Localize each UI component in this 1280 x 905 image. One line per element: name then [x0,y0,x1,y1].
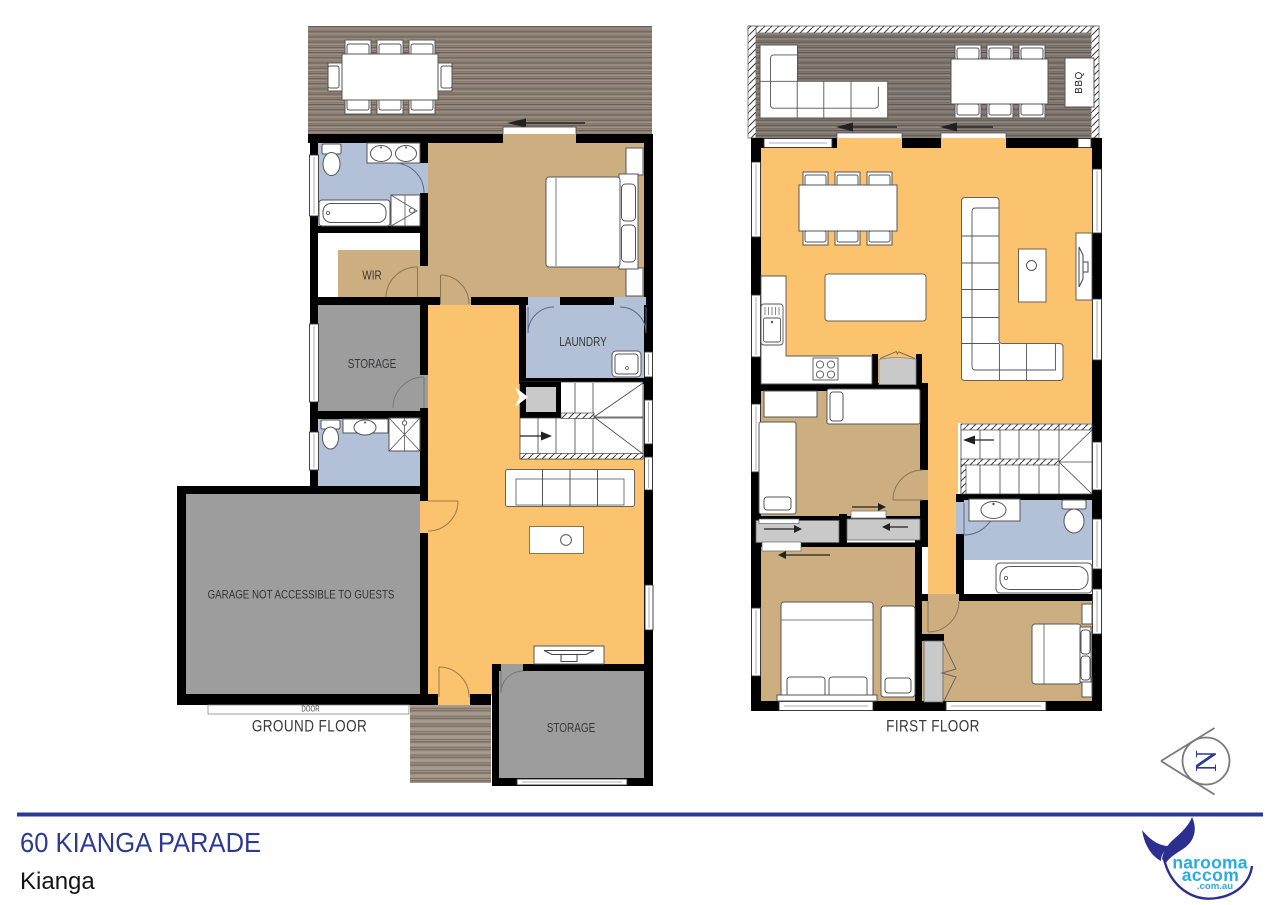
svg-text:GARAGE NOT ACCESSIBLE TO GUEST: GARAGE NOT ACCESSIBLE TO GUESTS [208,589,395,602]
svg-text:GROUND FLOOR: GROUND FLOOR [252,717,367,736]
svg-text:STORAGE: STORAGE [348,358,397,371]
svg-text:STORAGE: STORAGE [547,722,596,735]
svg-text:.com.au: .com.au [1197,881,1233,892]
svg-text:FIRST FLOOR: FIRST FLOOR [886,717,980,736]
svg-text:LAUNDRY: LAUNDRY [559,336,607,349]
svg-text:BBQ: BBQ [1074,71,1085,94]
svg-text:DOOR: DOOR [301,706,319,714]
svg-text:60 KIANGA PARADE: 60 KIANGA PARADE [20,827,261,858]
svg-text:WIR: WIR [362,270,381,283]
svg-text:Kianga: Kianga [20,868,95,895]
svg-text:N: N [1189,750,1223,772]
